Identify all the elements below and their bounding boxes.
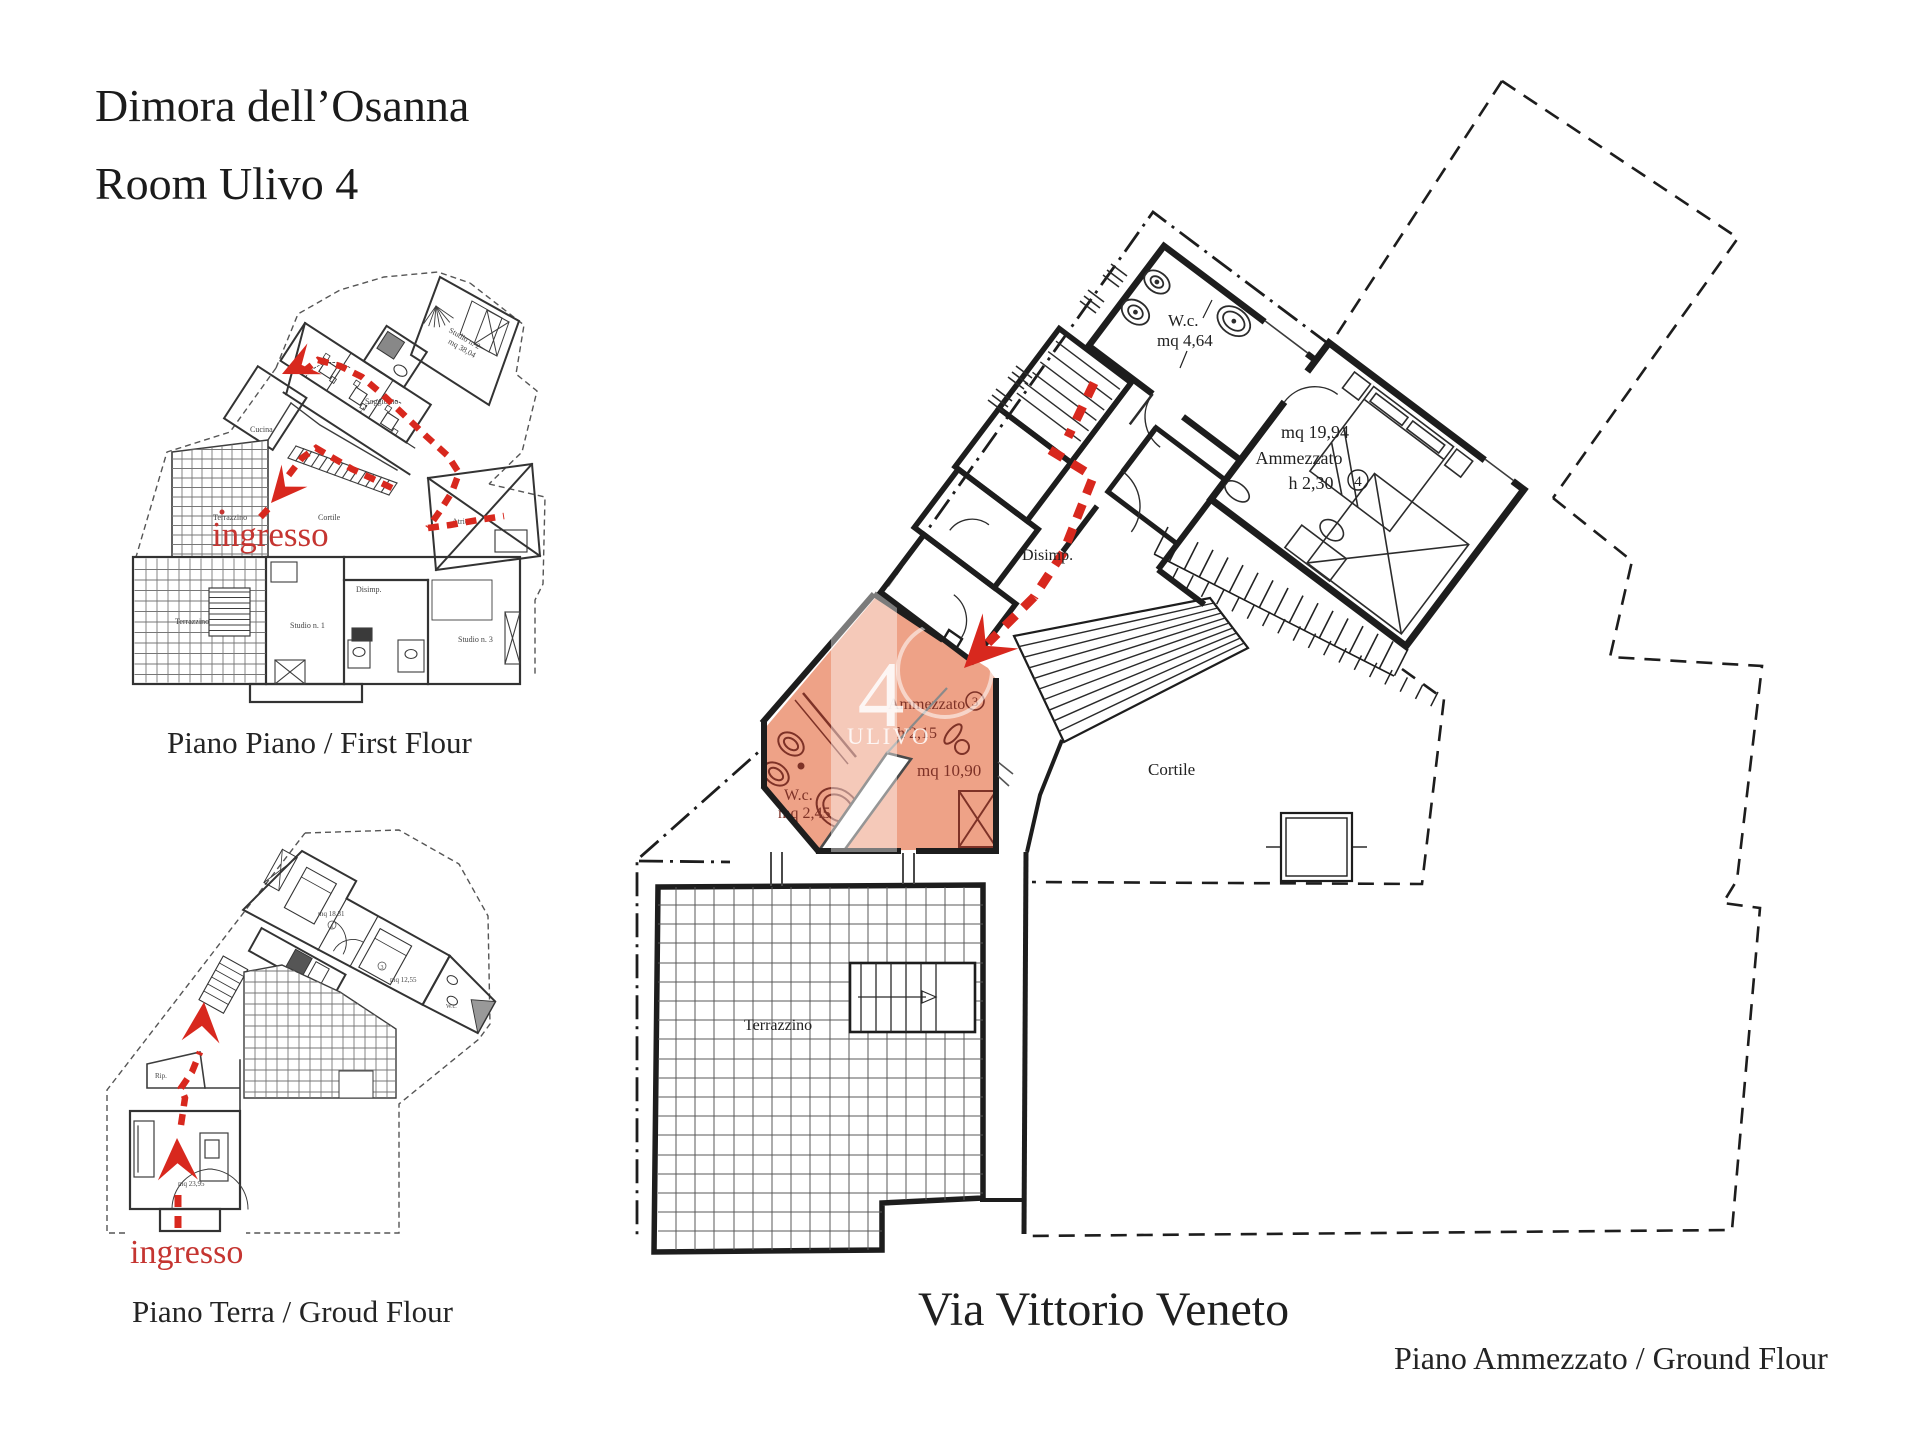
svg-text:Disimp.: Disimp. — [356, 585, 382, 594]
svg-text:Room Ulivo 4: Room Ulivo 4 — [95, 158, 358, 209]
svg-text:W.c.: W.c. — [784, 787, 813, 804]
svg-text:Soggiorno: Soggiorno — [365, 397, 398, 406]
svg-text:3: 3 — [381, 965, 384, 971]
svg-text:Disimp.: Disimp. — [1022, 547, 1073, 564]
svg-text:mq 23,95: mq 23,95 — [178, 1180, 205, 1188]
svg-text:W.c.: W.c. — [446, 1004, 457, 1010]
svg-text:Terrazzino: Terrazzino — [175, 617, 209, 626]
svg-text:mq 19,94: mq 19,94 — [1281, 422, 1349, 442]
svg-text:mq 18,31: mq 18,31 — [318, 910, 345, 918]
svg-text:Studio n. 3: Studio n. 3 — [458, 635, 493, 644]
svg-text:Cucina: Cucina — [250, 425, 273, 434]
svg-text:mq 12,55: mq 12,55 — [390, 976, 417, 984]
svg-text:Ammezzato: Ammezzato — [1256, 448, 1343, 468]
svg-text:ingresso: ingresso — [212, 515, 329, 554]
svg-text:Terrazzino: Terrazzino — [744, 1017, 812, 1034]
svg-text:Dimora dell’Osanna: Dimora dell’Osanna — [95, 80, 469, 131]
svg-text:Cortile: Cortile — [1148, 760, 1195, 779]
svg-text:Piano Ammezzato / Ground Flour: Piano Ammezzato / Ground Flour — [1394, 1340, 1828, 1376]
svg-text:mq 4,64: mq 4,64 — [1157, 331, 1213, 350]
svg-text:Piano Terra / Groud Flour: Piano Terra / Groud Flour — [132, 1294, 454, 1329]
svg-text:ULIVO: ULIVO — [847, 724, 931, 749]
svg-text:W.c.: W.c. — [1168, 311, 1199, 330]
svg-text:Piano Piano / First Flour: Piano Piano / First Flour — [167, 725, 473, 760]
svg-text:mq 10,90: mq 10,90 — [917, 761, 981, 780]
svg-text:1: 1 — [331, 924, 334, 930]
svg-text:h 2,30: h 2,30 — [1289, 473, 1334, 493]
svg-text:Studio n. 1: Studio n. 1 — [290, 621, 325, 630]
svg-text:Via Vittorio Veneto: Via Vittorio Veneto — [918, 1283, 1289, 1336]
svg-text:ingresso: ingresso — [130, 1234, 243, 1271]
svg-text:Rip.: Rip. — [155, 1072, 167, 1080]
svg-text:4: 4 — [1354, 474, 1362, 490]
